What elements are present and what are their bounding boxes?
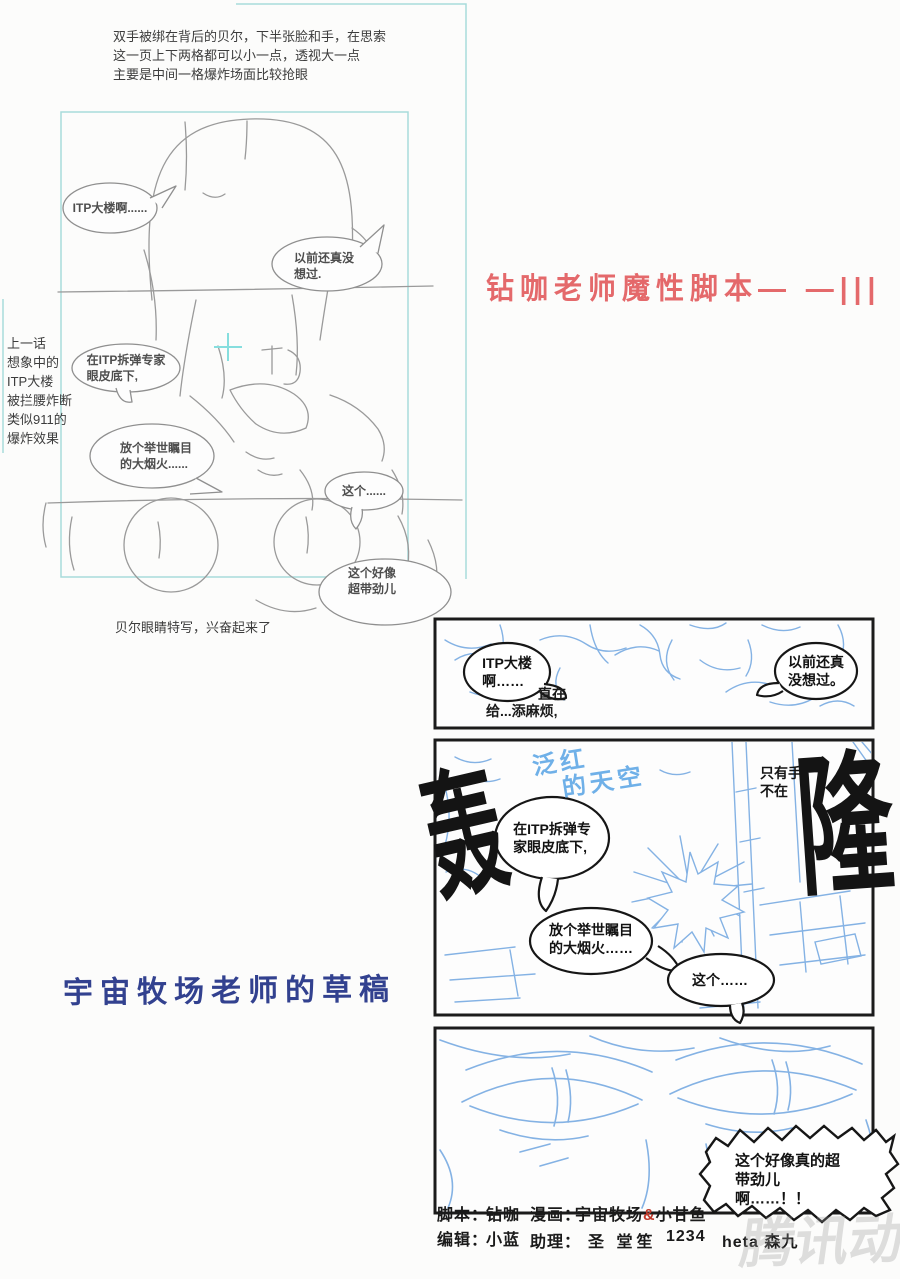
panel1-bubble-right: 以前还真 没想过。 (788, 653, 844, 689)
cyan-cross-marker (214, 333, 242, 361)
credit-comic-label: 漫画： (530, 1201, 581, 1225)
top-annotation-note: 双手被绑在背后的贝尔，下半张脸和手，在思索 这一页上下两格都可以小一点，透视大一… (113, 27, 386, 84)
credit-comic-artist2: 小甘鱼 (656, 1207, 707, 1224)
storyboard-bubble-cool: 这个好像 超带劲儿 (348, 565, 396, 597)
credit-script-value: 钻咖 (486, 1201, 520, 1225)
credit-script-label: 脚本： (437, 1201, 488, 1225)
panel1-partial-line1: 直在 (538, 686, 566, 703)
panel2-bubble-expert: 在ITP拆弹专 家眼皮底下, (513, 820, 591, 856)
credit-editor-label: 编辑： (437, 1226, 488, 1250)
artwork-layer (0, 0, 900, 1274)
credit-assistant-1: 圣 堂笙 (588, 1228, 656, 1252)
storyboard-bubble-expert: 在ITP拆弹专家 眼皮底下, (87, 352, 166, 384)
storyboard-caption: 贝尔眼睛特写，兴奋起来了 (115, 618, 271, 637)
panel2-bubble-this: 这个…… (692, 971, 748, 989)
storyboard-bubble-firework: 放个举世瞩目 的大烟火...... (120, 440, 192, 472)
credit-comic-ampersand: & (643, 1207, 656, 1224)
credit-comic-artist1: 宇宙牧场 (575, 1207, 643, 1224)
left-annotation-note: 上一话 想象中的 ITP大楼 被拦腰炸断 类似911的 爆炸效果 (7, 334, 72, 448)
script-title-red: 钻咖老师魔性脚本— —||| (486, 266, 881, 308)
panel2-bubble-firework: 放个举世瞩目 的大烟火…… (549, 921, 633, 957)
credit-assistant-label: 助理： (530, 1228, 581, 1252)
storyboard-bubbles (63, 183, 451, 625)
storyboard-bubble-never: 以前还真没 想过. (294, 250, 354, 282)
storyboard-bubble-this: 这个...... (342, 483, 386, 499)
site-watermark: 腾讯动漫 (736, 1192, 900, 1278)
credit-comic-value: 宇宙牧场&小甘鱼 (575, 1201, 707, 1225)
draft-title-blue: 宇宙牧场老师的草稿 (63, 964, 396, 1011)
panel1-partial-line2: 给...添麻烦, (486, 703, 566, 720)
sfx-boom-right: 隆 (792, 748, 899, 906)
panel1-partial-text: 直在 给...添麻烦, (486, 686, 566, 720)
panel1-bubble-left: ITP大楼 啊…… (482, 654, 532, 690)
credit-editor-value: 小蓝 (486, 1226, 520, 1250)
credit-assistant-2: 1234 (666, 1228, 706, 1246)
storyboard-bubble-itp: ITP大楼啊...... (73, 200, 148, 216)
comic-draft-page: { "notes": { "top_lines": "双手被绑在背后的贝尔，下半… (0, 0, 900, 1274)
